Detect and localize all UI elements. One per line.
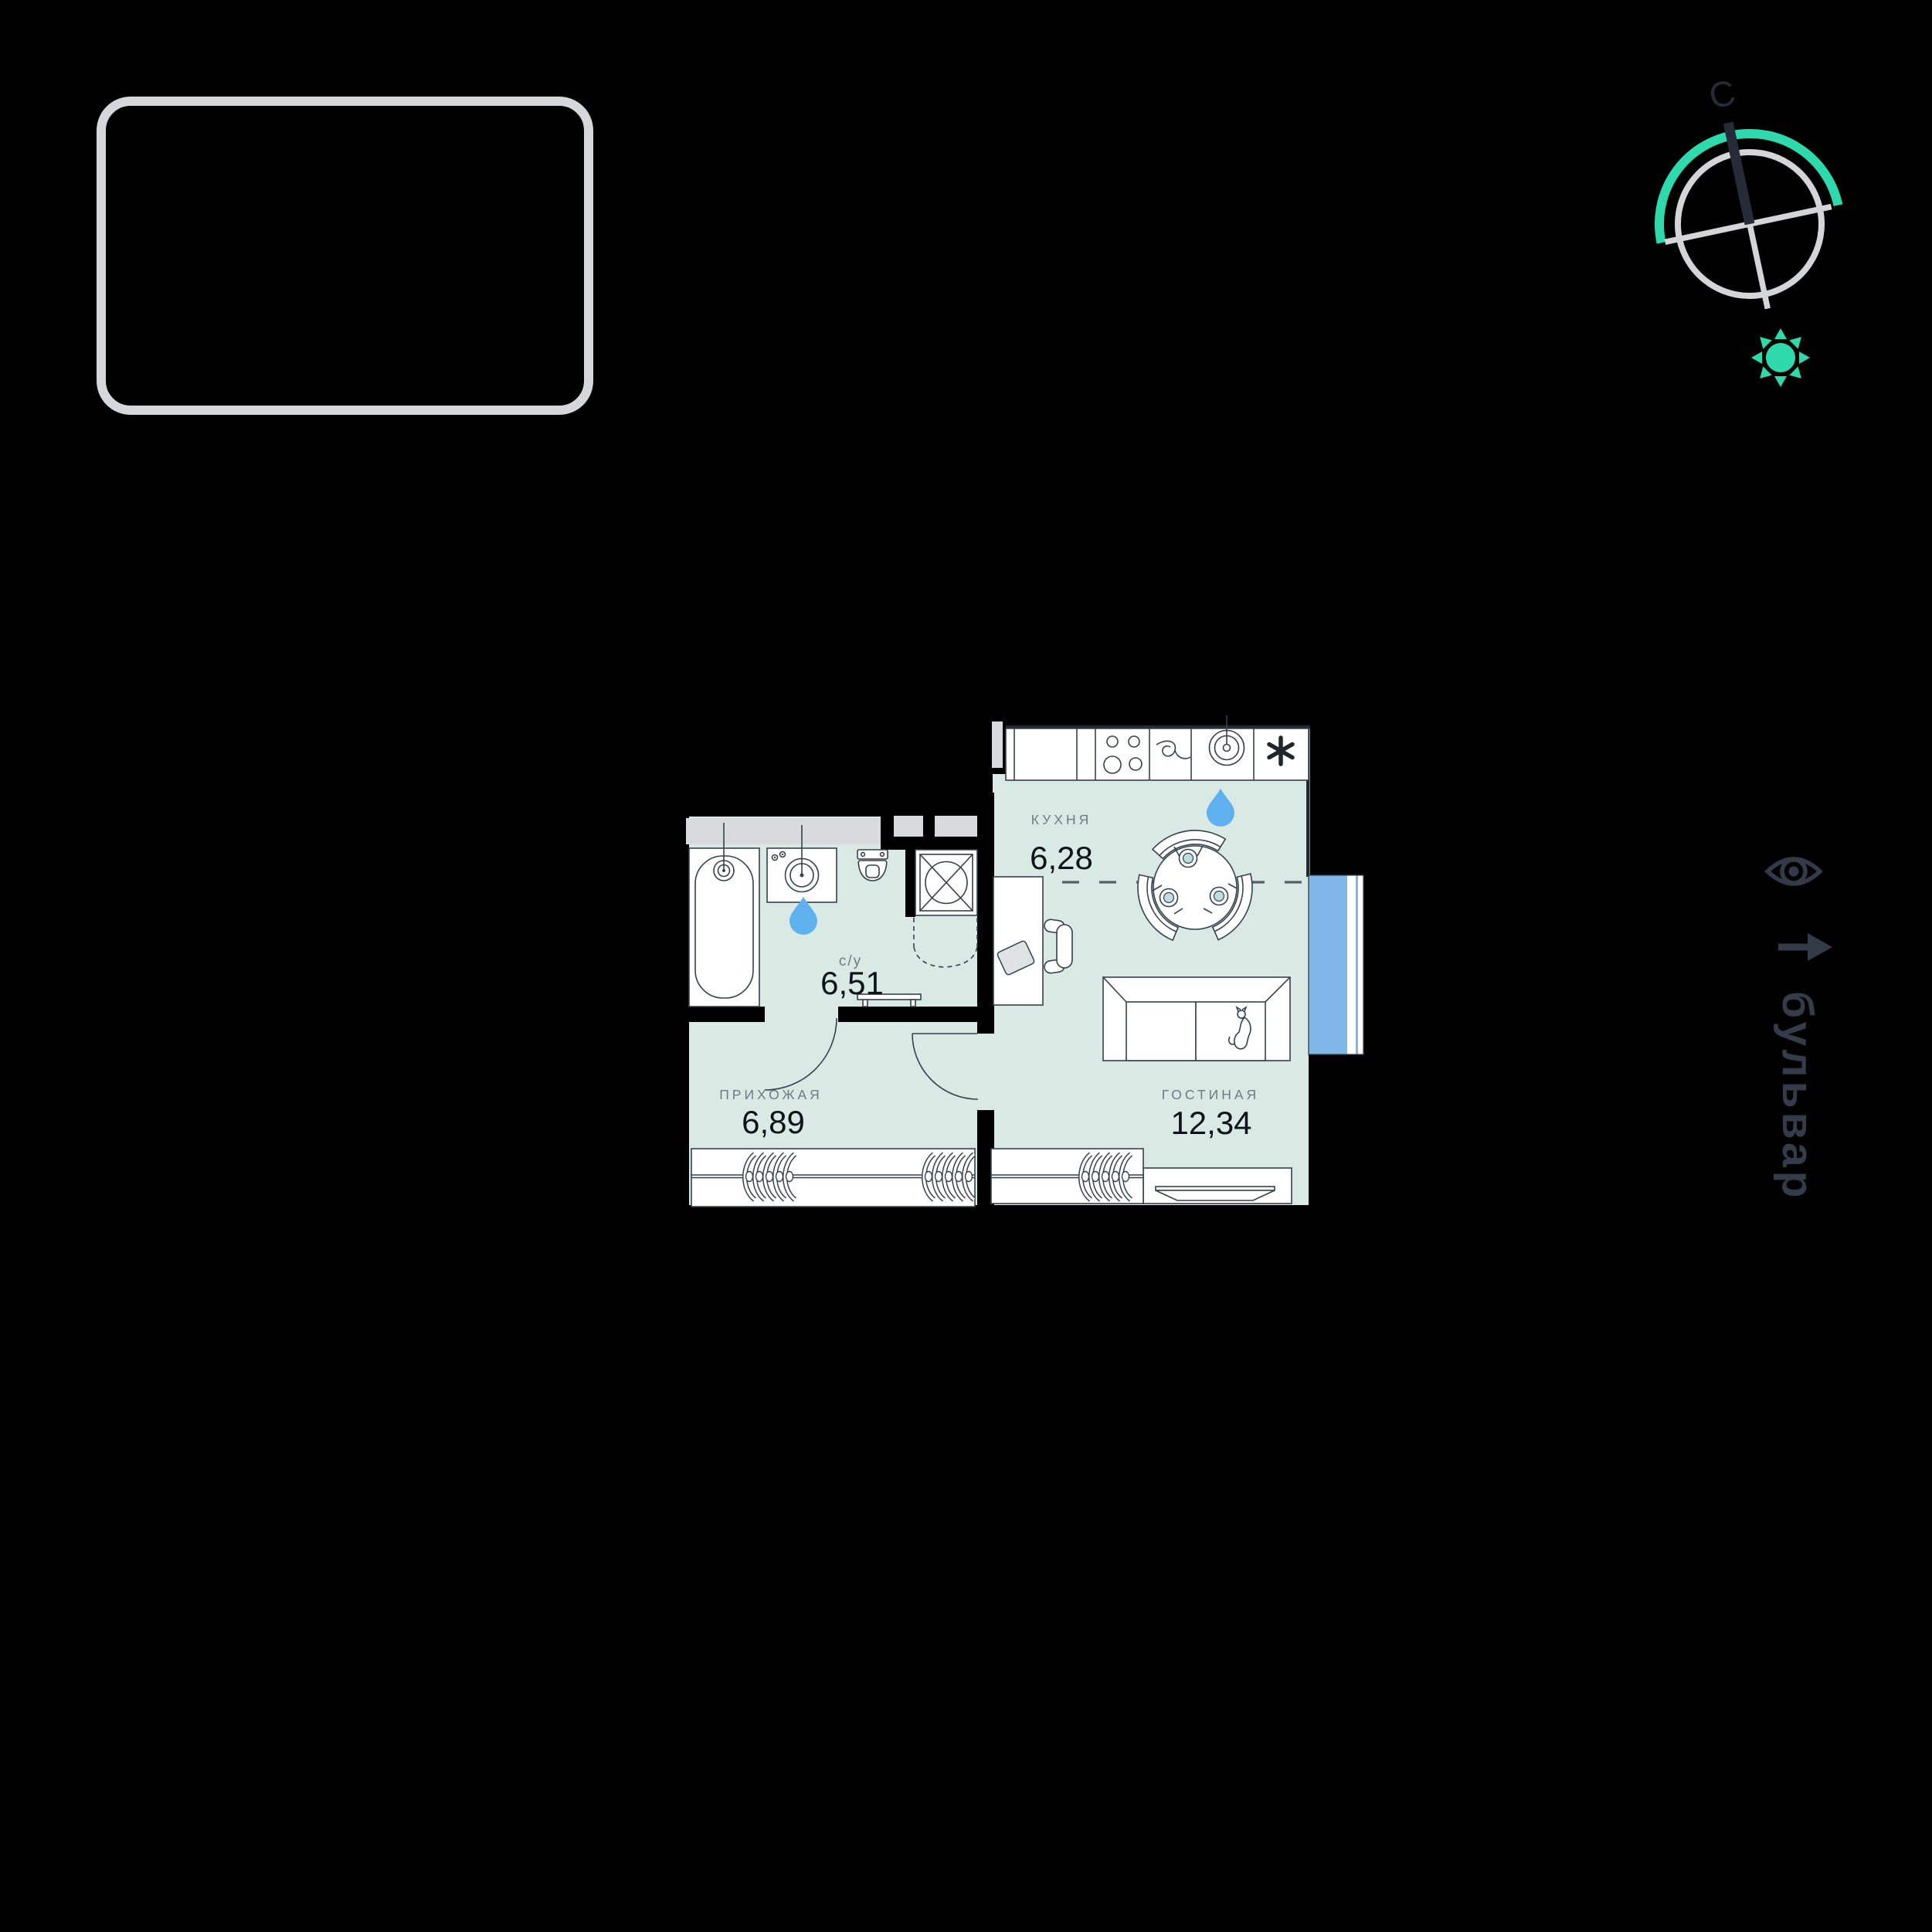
room-area-kitchen: 6,28: [1030, 840, 1093, 876]
tv-icon: [1156, 1190, 1275, 1200]
floor-plan: КУХНЯ 6,28 с/у 6,51 ПРИХОЖАЯ 6,89 ГОСТИН…: [672, 711, 1375, 1251]
room-label-kitchen: КУХНЯ: [1031, 812, 1092, 827]
view-direction-marker: [1752, 833, 1845, 980]
room-label-living: ГОСТИНАЯ: [1162, 1087, 1259, 1102]
washing-machine: [915, 850, 977, 915]
bathtub: [689, 823, 759, 1007]
compass-north-label: С: [1706, 72, 1739, 117]
eye-icon: [1767, 859, 1820, 884]
sun-icon: [1751, 328, 1810, 387]
room-area-hallway: 6,89: [742, 1104, 805, 1140]
room-area-bathroom: 6,51: [820, 965, 884, 1001]
compass: С: [1618, 39, 1896, 409]
kitchen-counter: [1006, 715, 1309, 780]
balcony-window: [1309, 875, 1363, 1054]
street-label: бульвар: [1772, 991, 1823, 1201]
legend-box: [97, 97, 593, 415]
shafts: [686, 722, 1003, 844]
room-area-living: 12,34: [1170, 1105, 1251, 1141]
desk: [993, 877, 1043, 1005]
tv-stand: [1143, 1168, 1292, 1204]
wardrobe-living: [991, 1149, 1143, 1204]
room-label-hallway: ПРИХОЖАЯ: [719, 1087, 823, 1102]
dining-table: [1153, 846, 1237, 929]
sofa: [1103, 977, 1290, 1061]
wardrobe-hallway: [691, 1149, 975, 1207]
direction-arrow-icon: [1778, 933, 1832, 961]
page: С: [0, 0, 1932, 1932]
